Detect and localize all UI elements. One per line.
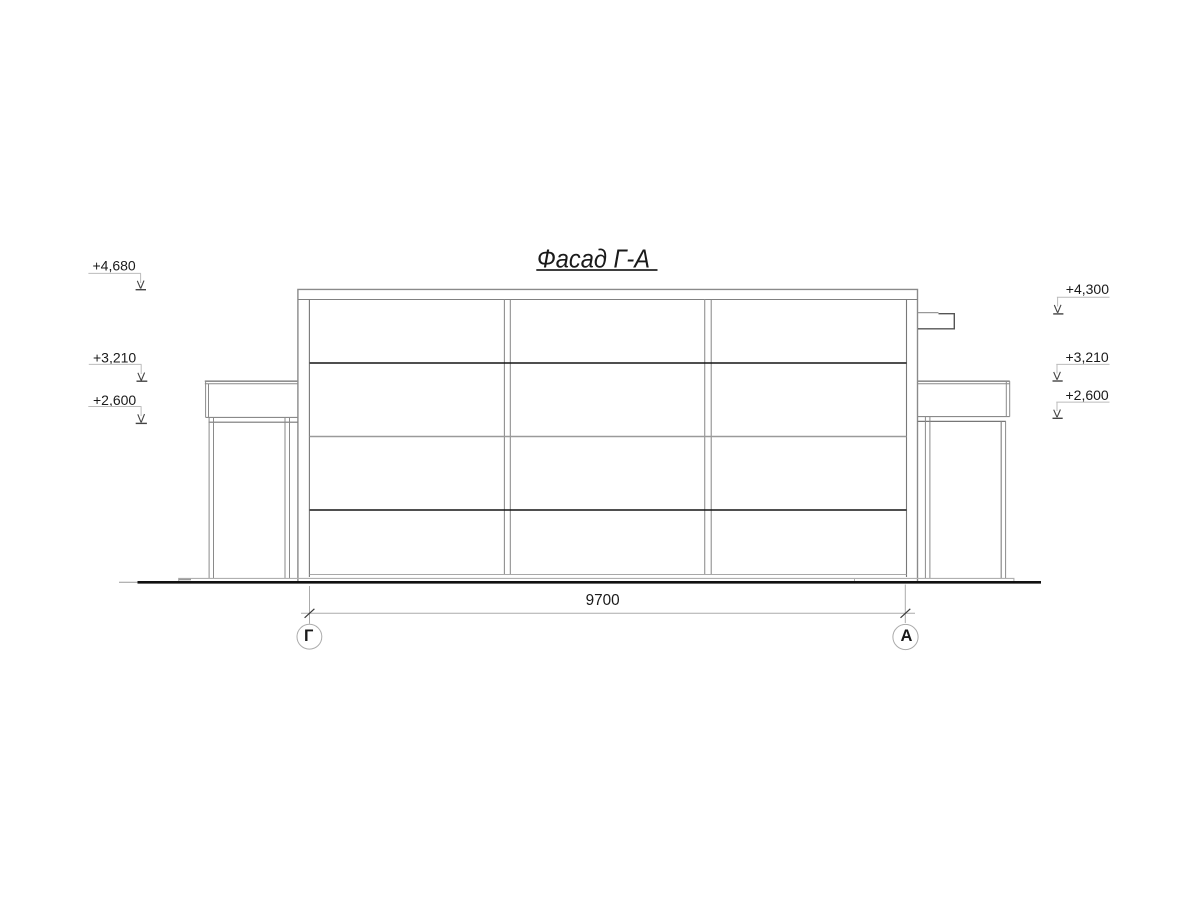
svg-text:+2,600: +2,600 xyxy=(1066,387,1109,403)
svg-text:+4,300: +4,300 xyxy=(1066,281,1109,297)
svg-text:+2,600: +2,600 xyxy=(93,392,136,408)
svg-text:А: А xyxy=(900,627,912,645)
svg-text:Фасад Г-А: Фасад Г-А xyxy=(537,244,650,274)
svg-text:+3,210: +3,210 xyxy=(1066,349,1109,365)
svg-text:Г: Г xyxy=(304,627,314,645)
svg-text:+4,680: +4,680 xyxy=(93,257,136,273)
svg-text:+3,210: +3,210 xyxy=(93,350,136,366)
svg-text:9700: 9700 xyxy=(586,592,620,609)
